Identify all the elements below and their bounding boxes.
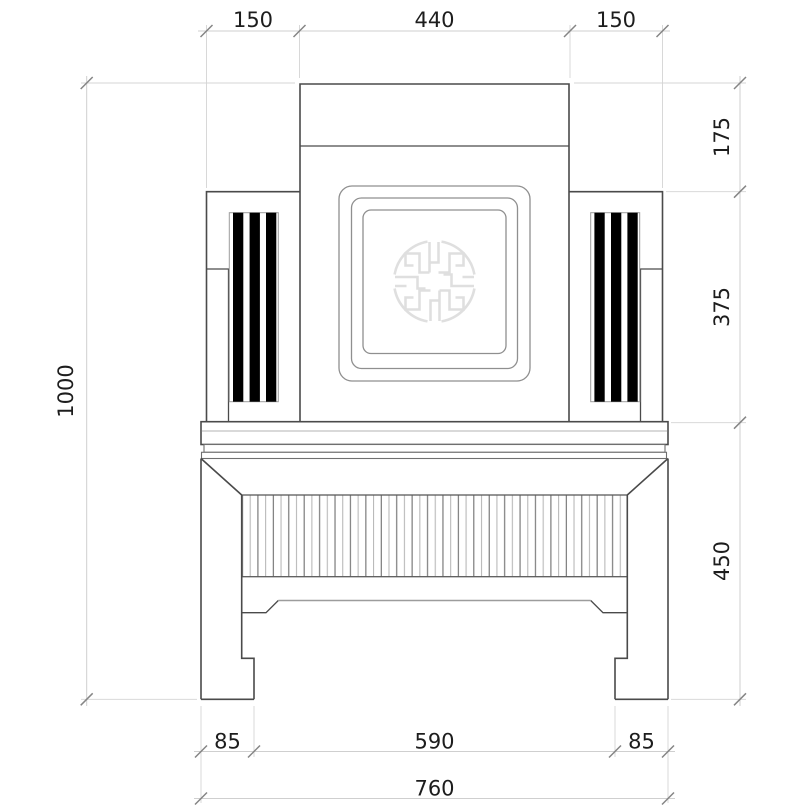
dim-label-overall-width: 760 — [414, 777, 454, 801]
armchair-front-elevation-drawing: 150 440 150 175 375 450 1000 85 590 85 7… — [0, 0, 810, 810]
dim-label-right-lower: 450 — [710, 541, 734, 581]
canvas-background — [0, 0, 810, 810]
right-stripe-bars — [594, 213, 637, 402]
dim-label-right-middle: 375 — [710, 287, 734, 327]
waist-molding-upper — [204, 445, 665, 453]
dim-label-bottom-right: 85 — [628, 730, 655, 754]
seat-top-rail — [201, 422, 668, 445]
slat-panel — [242, 495, 628, 577]
dim-label-bottom-center: 590 — [414, 730, 454, 754]
left-stripe-bars — [233, 213, 276, 402]
dim-label-top-right: 150 — [596, 8, 636, 32]
dim-label-top-left: 150 — [233, 8, 273, 32]
dim-label-right-upper: 175 — [710, 117, 734, 157]
dim-label-top-center: 440 — [414, 8, 454, 32]
dim-label-left-height: 1000 — [54, 364, 78, 417]
seat-frame — [201, 422, 668, 459]
waist-molding-lower — [202, 452, 667, 458]
dim-label-bottom-left: 85 — [214, 730, 241, 754]
